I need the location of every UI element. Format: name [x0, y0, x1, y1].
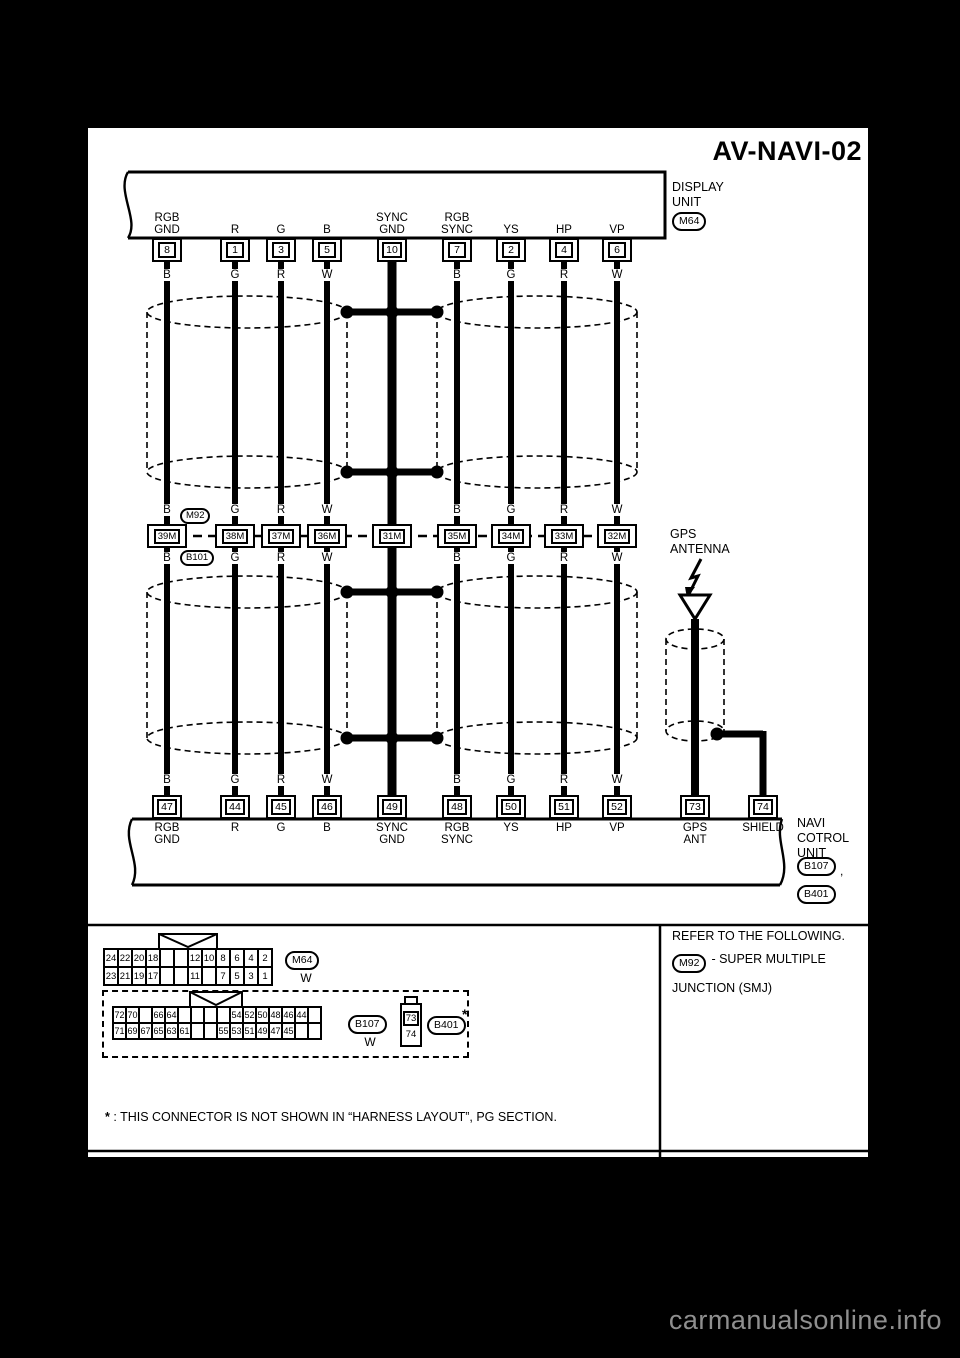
- b401-oval: B401: [427, 1016, 466, 1035]
- wire-color-label: G: [229, 552, 242, 564]
- wire-color-label: R: [275, 774, 287, 786]
- navi-unit-pin-box-number: 73: [685, 799, 705, 815]
- navi-unit-pin-box: 45: [266, 795, 296, 819]
- refer-line1: REFER TO THE FOLLOWING.: [672, 928, 862, 944]
- wire-color-label: G: [505, 504, 518, 516]
- smj-connector-box: 39M: [147, 524, 187, 548]
- display-unit-pin-box: 7: [442, 238, 472, 262]
- smj-connector-id: 38M: [222, 529, 248, 544]
- display-unit-pin-box: 8: [152, 238, 182, 262]
- wire-color-label: W: [610, 774, 625, 786]
- wire-color-label: R: [558, 552, 570, 564]
- terminal-cell-1: 1: [257, 966, 273, 986]
- display-unit-pin-box: 6: [602, 238, 632, 262]
- navi-unit-pin-box-number: 45: [271, 799, 291, 815]
- navi-unit-pin-box-number: 50: [501, 799, 521, 815]
- navi-unit-pin-box-number: 49: [382, 799, 402, 815]
- display-unit-pin-box: 2: [496, 238, 526, 262]
- wire-color-label: B: [451, 504, 463, 516]
- wire-color-label: R: [558, 504, 570, 516]
- wire-color-label: W: [610, 552, 625, 564]
- smj-connector-id: 33M: [551, 529, 577, 544]
- comma: ,: [840, 864, 843, 878]
- display-unit-pin-label: SYNCGND: [359, 200, 425, 236]
- navi-unit-pin-box: 74: [748, 795, 778, 819]
- navi-unit-pin-label: SHIELD: [730, 823, 796, 853]
- display-unit-pin-box-number: 8: [158, 242, 176, 258]
- display-unit-label: DISPLAY UNIT: [672, 180, 724, 210]
- display-unit-pin-box-number: 4: [555, 242, 573, 258]
- wire-color-label: B: [161, 774, 173, 786]
- smj-connector-box: 37M: [261, 524, 301, 548]
- wire-color-label: R: [558, 269, 570, 281]
- wire-color-label: G: [229, 504, 242, 516]
- watermark: carmanualsonline.info: [669, 1305, 942, 1336]
- display-unit-pin-box-number: 2: [502, 242, 520, 258]
- navi-unit-pin-box-number: 46: [317, 799, 337, 815]
- smj-connector-box: 33M: [544, 524, 584, 548]
- wire-color-label: R: [558, 774, 570, 786]
- refer-m92-oval: M92: [672, 954, 706, 973]
- scanned-manual-page: { "title": "AV-NAVI-02", "watermark": "c…: [0, 0, 960, 1358]
- navi-unit-pin-box-number: 44: [225, 799, 245, 815]
- gps-antenna-label: GPS ANTENNA: [670, 527, 730, 557]
- navi-unit-pin-box: 52: [602, 795, 632, 819]
- display-unit-pin-box-number: 1: [226, 242, 244, 258]
- navi-unit-pin-box-number: 52: [607, 799, 627, 815]
- footnote: * : THIS CONNECTOR IS NOT SHOWN IN “HARN…: [105, 1110, 557, 1124]
- navi-unit-pin-box-number: 51: [554, 799, 574, 815]
- smj-connector-id: 34M: [498, 529, 524, 544]
- smj-b101-oval: B101: [180, 550, 214, 566]
- smj-connector-box: 38M: [215, 524, 255, 548]
- wire-color-label: R: [275, 504, 287, 516]
- smj-connector-id: 36M: [314, 529, 340, 544]
- wire-color-label: G: [505, 552, 518, 564]
- wire-color-label: R: [275, 269, 287, 281]
- footnote-text: : THIS CONNECTOR IS NOT SHOWN IN “HARNES…: [110, 1110, 557, 1124]
- display-unit-pin-label: B: [294, 200, 360, 236]
- navi-unit-pin-label: B: [294, 823, 360, 853]
- wire-color-label: W: [320, 774, 335, 786]
- wire-color-label: B: [451, 269, 463, 281]
- wire-color-label: G: [229, 774, 242, 786]
- navi-unit-connector-b107-oval: B107: [797, 857, 836, 876]
- b401-pin-73: 73: [403, 1011, 419, 1026]
- wire-color-label: G: [229, 269, 242, 281]
- smj-connector-box: 31M: [372, 524, 412, 548]
- navi-unit-pin-box-number: 74: [753, 799, 773, 815]
- navi-unit-connector-b401-oval: B401: [797, 885, 836, 904]
- b401-pin-74: 74: [403, 1029, 419, 1040]
- display-unit-pin-box: 1: [220, 238, 250, 262]
- navi-unit-pin-box: 44: [220, 795, 250, 819]
- refer-line3: JUNCTION (SMJ): [672, 980, 862, 996]
- wire-color-label: R: [275, 552, 287, 564]
- smj-connector-id: 39M: [154, 529, 180, 544]
- wire-color-label: G: [505, 774, 518, 786]
- navi-unit-pin-box: 47: [152, 795, 182, 819]
- wire-color-label: W: [320, 552, 335, 564]
- display-unit-pin-box: 10: [377, 238, 407, 262]
- navi-unit-pin-box: 49: [377, 795, 407, 819]
- smj-connector-box: 35M: [437, 524, 477, 548]
- display-unit-pin-box: 3: [266, 238, 296, 262]
- smj-m92-oval: M92: [180, 508, 210, 524]
- wiring-diagram-page: AV-NAVI-02 RGBGND8BBBB39M47RGBGNDR1GGGG3…: [88, 128, 868, 1157]
- smj-connector-id: 32M: [604, 529, 630, 544]
- display-unit-pin-box-number: 10: [382, 242, 402, 258]
- wire-color-label: B: [161, 269, 173, 281]
- display-unit-pin-label: VP: [584, 200, 650, 236]
- navi-unit-pin-box-number: 48: [447, 799, 467, 815]
- display-unit-pin-box-number: 3: [272, 242, 290, 258]
- navi-unit-label: NAVI COTROL UNIT: [797, 816, 849, 861]
- smj-connector-box: 34M: [491, 524, 531, 548]
- terminal-cell-empty: [307, 1022, 322, 1040]
- smj-connector-id: 31M: [379, 529, 405, 544]
- terminal-cell-2: 2: [257, 948, 273, 968]
- smj-connector-id: 35M: [444, 529, 470, 544]
- wire-color-label: W: [610, 269, 625, 281]
- display-unit-pin-label: RGBGND: [134, 200, 200, 236]
- display-unit-pin-box-number: 5: [318, 242, 336, 258]
- display-unit-pin-box-number: 7: [448, 242, 466, 258]
- smj-connector-box: 32M: [597, 524, 637, 548]
- b107-oval: B107: [348, 1015, 387, 1034]
- wire-color-label: B: [161, 504, 173, 516]
- display-unit-pin-box: 4: [549, 238, 579, 262]
- navi-unit-pin-label: SYNCGND: [359, 823, 425, 853]
- navi-unit-pin-box: 48: [442, 795, 472, 819]
- navi-unit-pin-box: 50: [496, 795, 526, 819]
- navi-unit-pin-box: 73: [680, 795, 710, 819]
- navi-unit-pin-box: 46: [312, 795, 342, 819]
- navi-unit-pin-box-number: 47: [157, 799, 177, 815]
- smj-connector-id: 37M: [268, 529, 294, 544]
- refer-panel: REFER TO THE FOLLOWING. M92- SUPER MULTI…: [672, 928, 862, 996]
- wire-color-label: B: [451, 552, 463, 564]
- navi-unit-pin-label: GPSANT: [662, 823, 728, 853]
- refer-line2: - SUPER MULTIPLE: [711, 952, 825, 966]
- navi-unit-pin-label: VP: [584, 823, 650, 853]
- display-unit-connector-oval: M64: [672, 212, 706, 231]
- wire-color-label: B: [161, 552, 173, 564]
- m64-color: W: [285, 971, 327, 985]
- b401-star: *: [462, 1006, 467, 1022]
- wire-color-label: W: [320, 504, 335, 516]
- b107-color: W: [348, 1035, 392, 1049]
- wire-color-label: B: [451, 774, 463, 786]
- wire-color-label: W: [610, 504, 625, 516]
- navi-unit-pin-box: 51: [549, 795, 579, 819]
- m64-oval: M64: [285, 951, 319, 970]
- navi-unit-pin-label: RGBGND: [134, 823, 200, 853]
- b401-tab: [404, 996, 418, 1003]
- smj-connector-box: 36M: [307, 524, 347, 548]
- display-unit-pin-box-number: 6: [608, 242, 626, 258]
- wire-color-label: G: [505, 269, 518, 281]
- wire-color-label: W: [320, 269, 335, 281]
- display-unit-pin-box: 5: [312, 238, 342, 262]
